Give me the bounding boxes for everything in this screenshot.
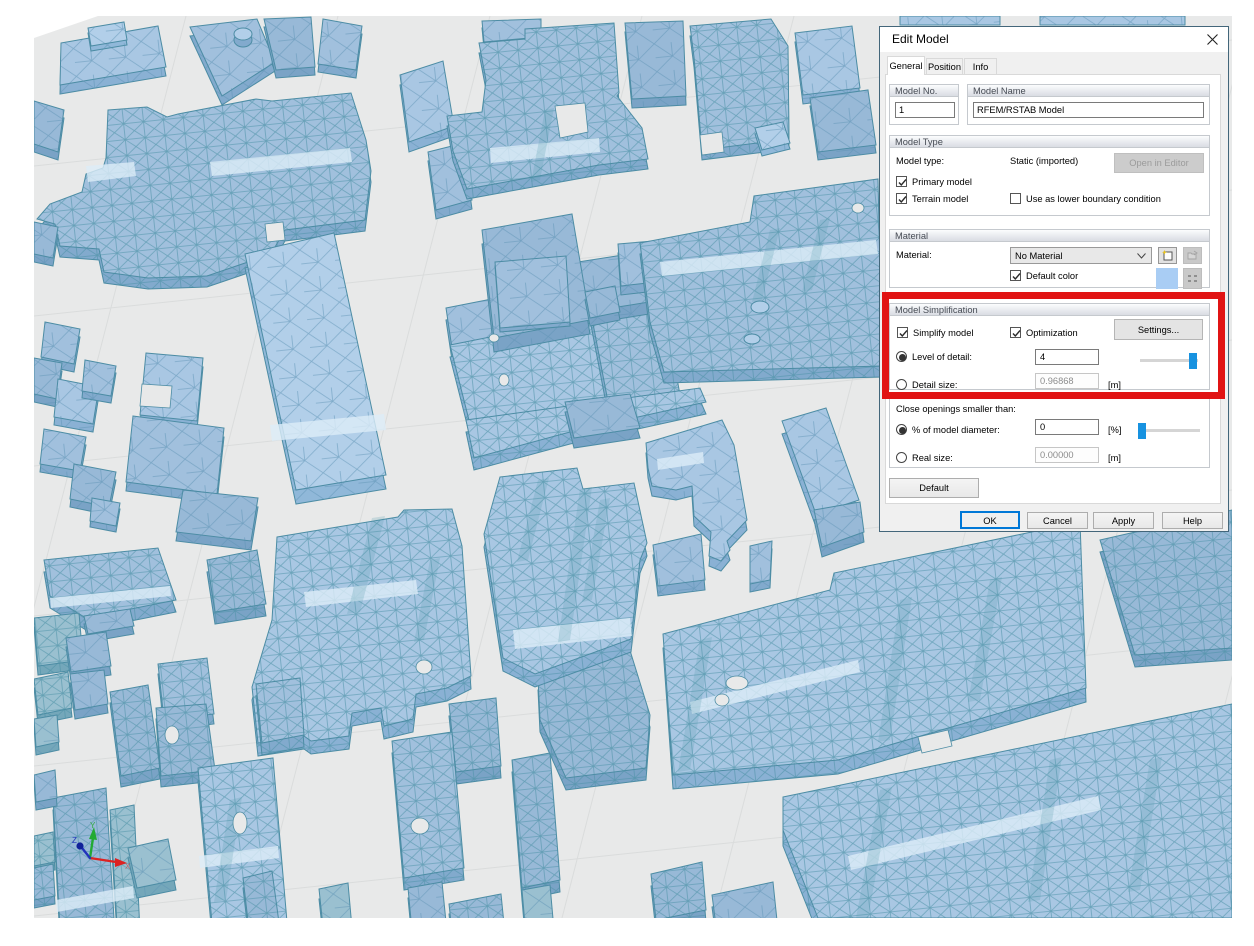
svg-text:Z: Z <box>72 836 77 845</box>
svg-text:X: X <box>125 862 131 871</box>
svg-text:Y: Y <box>90 821 96 830</box>
